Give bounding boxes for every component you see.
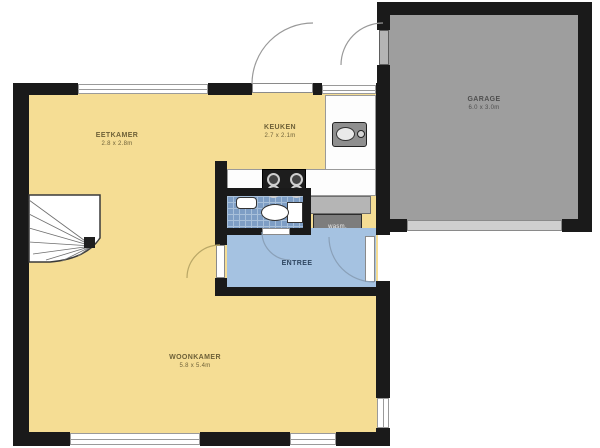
garage-side-door-arc	[341, 23, 383, 65]
hall-living-door-arc	[187, 245, 220, 278]
stairs-icon	[29, 195, 100, 262]
back-door-arc	[329, 237, 374, 282]
door-arcs-and-stairs	[0, 0, 600, 448]
floor-plan: wasm.	[0, 0, 600, 448]
bathroom-door-arc	[262, 232, 290, 260]
stair-newel-post	[84, 237, 95, 248]
front-door-arc	[252, 23, 313, 84]
